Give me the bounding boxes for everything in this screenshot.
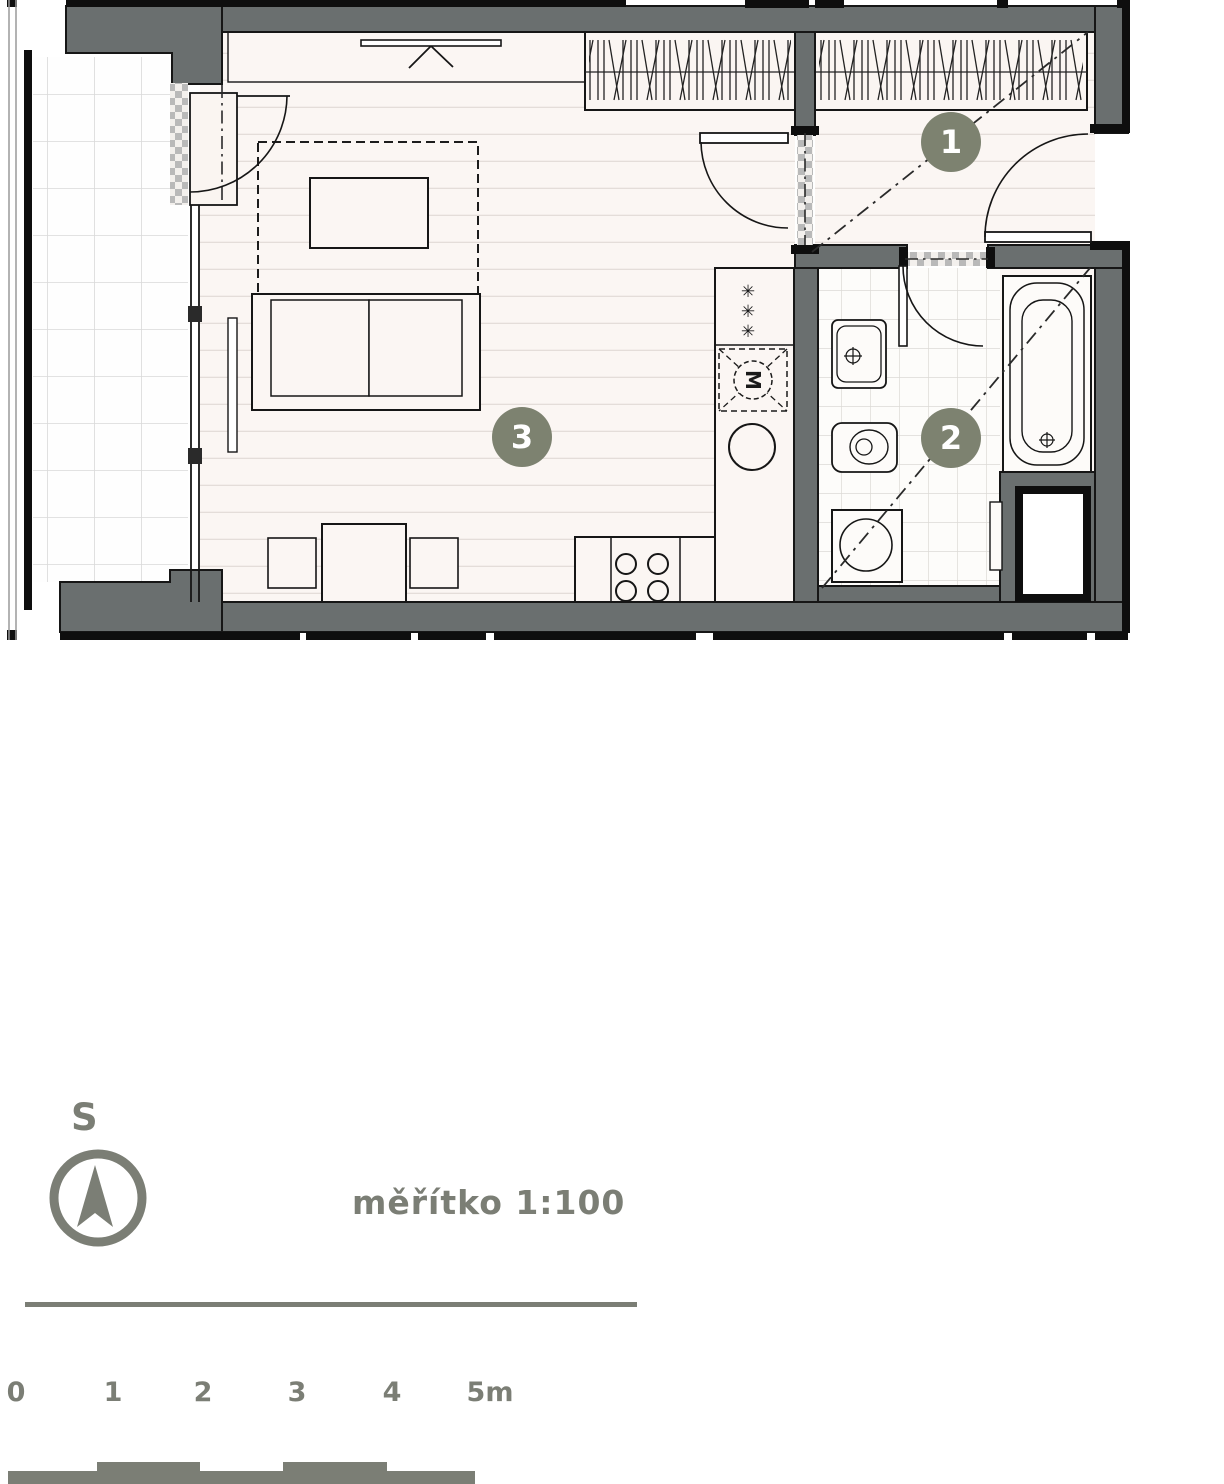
door-leaf (985, 232, 1091, 242)
door-leaf (700, 133, 788, 143)
scale-label: měřítko 1:100 (352, 1183, 625, 1222)
compass-icon (45, 1147, 151, 1253)
radiator (228, 318, 237, 452)
wall-partition-upper (795, 32, 815, 135)
stool (268, 538, 316, 588)
page: ✳ ✳ ✳ M (0, 0, 1224, 1484)
bathroom-sink (832, 320, 886, 388)
stool (410, 538, 458, 588)
balcony-glass-wall (188, 205, 202, 602)
kitchen-counter-bottom (575, 537, 715, 602)
kitchen-sink (729, 424, 775, 470)
wardrobes (585, 32, 1087, 110)
wall-top (66, 6, 1128, 32)
scale-tick-5: 5m (467, 1377, 514, 1408)
coffee-table (310, 178, 428, 248)
scale-bar-segment (97, 1462, 200, 1472)
washing-machine (832, 510, 902, 582)
north-label: S (71, 1096, 98, 1139)
floor-plan: ✳ ✳ ✳ M (0, 0, 1224, 650)
sofa-seat (271, 300, 369, 396)
room-number: 3 (511, 418, 533, 456)
scale-tick-3: 3 (288, 1377, 307, 1408)
window-mullion (188, 448, 202, 464)
dining-table (322, 524, 406, 602)
balcony-railing (24, 50, 32, 610)
door-leaf (190, 93, 237, 205)
freezer-icon: ✳ (741, 282, 755, 302)
room-badge-2: 2 (921, 408, 981, 468)
wall-bottom (222, 602, 1128, 632)
hood-symbol: M (741, 370, 765, 390)
scale-tick-2: 2 (194, 1377, 213, 1408)
scale-bar-base (8, 1471, 475, 1484)
freezer-icon: ✳ (741, 302, 755, 322)
room-number: 2 (940, 419, 962, 457)
scale-bar-segment (283, 1462, 387, 1472)
duct (990, 502, 1002, 570)
facade-line (9, 0, 16, 640)
sofa-seat (369, 300, 462, 396)
room-number: 1 (940, 123, 962, 161)
door-leaf (899, 266, 907, 346)
freezer-icon: ✳ (741, 322, 755, 342)
scale-tick-4: 4 (383, 1377, 402, 1408)
balcony-floor (33, 57, 188, 582)
divider-line (25, 1302, 637, 1307)
window-mullion (188, 306, 202, 322)
room-badge-3: 3 (492, 407, 552, 467)
toilet (832, 423, 897, 472)
wall-partition-lower (794, 268, 818, 602)
north-arrow (77, 1165, 113, 1227)
room-badge-1: 1 (921, 112, 981, 172)
bathtub (1003, 276, 1091, 472)
tv (361, 40, 501, 46)
scale-tick-0: 0 (7, 1377, 26, 1408)
scale-tick-1: 1 (104, 1377, 123, 1408)
